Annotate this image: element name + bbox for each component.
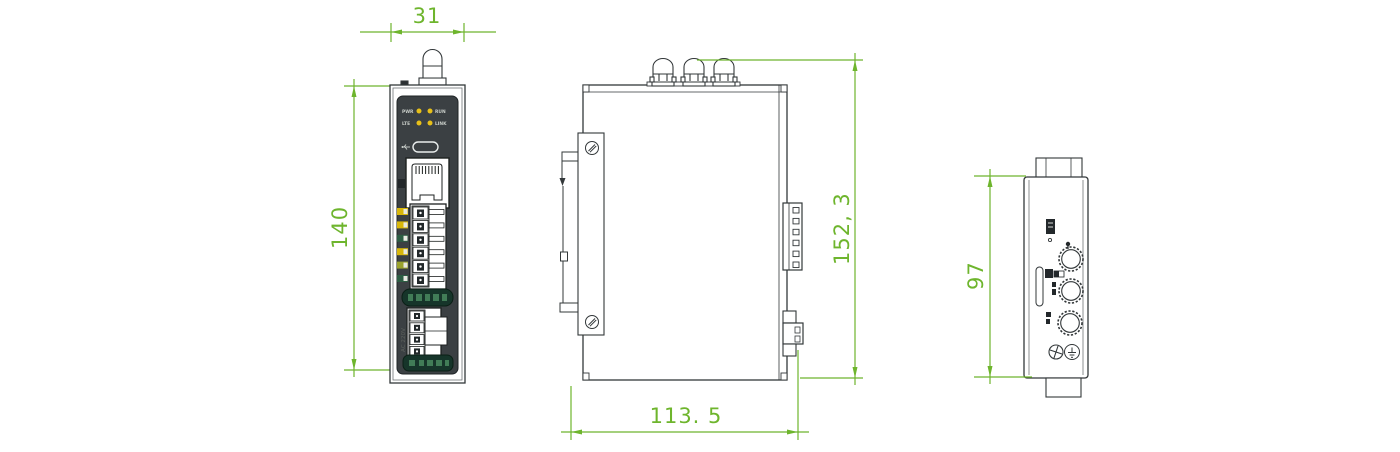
green-label-upper [402, 289, 453, 306]
led-lte-icon [417, 121, 422, 126]
port-text-mark [1052, 282, 1056, 287]
dim-front-width: 31 [360, 4, 496, 42]
dim-right-height: 97 [964, 169, 1032, 384]
side-power-protrusion [783, 311, 803, 356]
ethernet-port [398, 158, 449, 208]
arrowhead-down-icon [352, 359, 357, 370]
port-text-mark [1052, 289, 1056, 295]
port-text-mark [1046, 319, 1050, 324]
side-view: 152, 3 113. 5 [560, 53, 864, 440]
side-terminal-protrusion [783, 203, 802, 270]
antenna-connector-icon [650, 59, 676, 87]
dim-side-width-label: 113. 5 [650, 404, 723, 428]
arrowhead-up-icon [352, 86, 357, 97]
led-run-label: RUN [435, 109, 446, 115]
arrowhead-left-icon [571, 430, 582, 435]
front-view: 31 140 PWR RUN LTE [328, 4, 496, 383]
port-label-chip [398, 179, 405, 188]
side-body [583, 85, 787, 380]
dim-front-height-label: 140 [328, 206, 352, 249]
sim-mark [1045, 269, 1053, 278]
green-label-lower [403, 355, 453, 371]
right-bottom-block [1046, 378, 1081, 397]
led-pwr-icon [417, 109, 422, 114]
antenna-connector-icon [401, 50, 446, 86]
arrowhead-right-icon [787, 430, 798, 435]
arrowhead-left-icon [391, 30, 402, 35]
antenna-connector-icon [681, 59, 707, 87]
arrowhead-up-icon [988, 176, 993, 187]
dim-side-height-label: 152, 3 [830, 192, 854, 265]
antenna-mark-icon [1066, 242, 1070, 246]
led-link-icon [428, 121, 433, 126]
screw-icon [586, 316, 599, 329]
din-rail-clip-icon [560, 152, 579, 312]
arrowhead-up-icon [853, 60, 858, 71]
right-top-block [1036, 158, 1082, 178]
arrowhead-right-icon [453, 30, 464, 35]
power-rating-label: AC 220V [401, 328, 407, 352]
led-run-icon [428, 109, 433, 114]
screw-icon [586, 142, 599, 155]
led-link-label: LINK [435, 121, 447, 127]
dim-right-height-label: 97 [964, 261, 988, 290]
right-view: 97 [964, 158, 1088, 397]
led-lte-label: LTE [402, 121, 410, 127]
power-terminal-block: AC 220V [401, 308, 447, 357]
antenna-connector-icon [711, 59, 737, 87]
technical-drawing: 31 140 PWR RUN LTE [0, 0, 1400, 452]
dim-front-height: 140 [328, 79, 392, 377]
din-rail-bracket [560, 133, 605, 335]
port-text-mark [1046, 312, 1051, 317]
arrowhead-down-icon [853, 367, 858, 378]
arrowhead-down-icon [988, 366, 993, 377]
led-pwr-label: PWR [402, 109, 414, 115]
dim-front-width-label: 31 [413, 4, 442, 28]
